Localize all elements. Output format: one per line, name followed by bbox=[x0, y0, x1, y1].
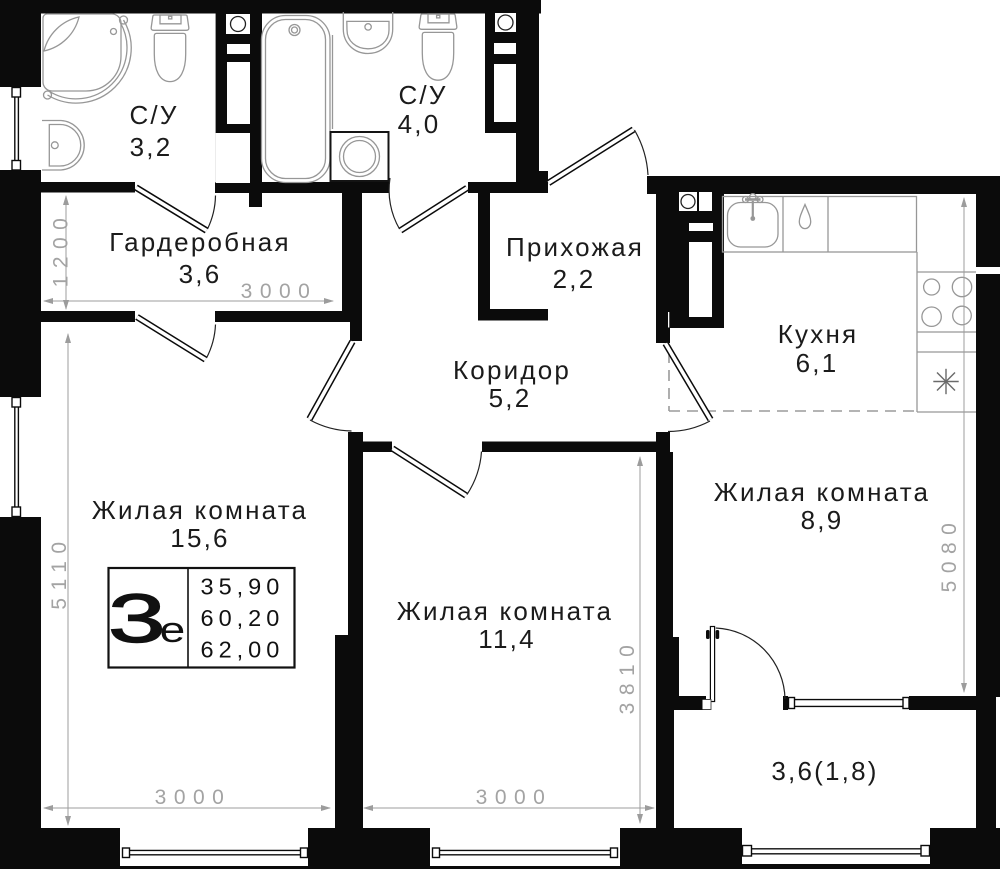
svg-text:Гардеробная: Гардеробная bbox=[109, 227, 290, 257]
svg-text:Жилая комната: Жилая комната bbox=[397, 596, 613, 626]
svg-text:3000: 3000 bbox=[476, 786, 553, 809]
svg-text:3810: 3810 bbox=[616, 638, 639, 715]
svg-text:3,6(1,8): 3,6(1,8) bbox=[771, 756, 878, 786]
svg-text:3,6: 3,6 bbox=[179, 259, 222, 289]
svg-text:62,00: 62,00 bbox=[201, 637, 285, 663]
svg-text:3000: 3000 bbox=[155, 786, 232, 809]
svg-text:Кухня: Кухня bbox=[778, 319, 859, 349]
svg-text:5,2: 5,2 bbox=[489, 383, 532, 413]
svg-text:60,20: 60,20 bbox=[201, 605, 285, 631]
svg-text:3,2: 3,2 bbox=[130, 132, 173, 162]
svg-text:3000: 3000 bbox=[241, 280, 318, 303]
svg-text:8,9: 8,9 bbox=[801, 505, 844, 535]
svg-text:5110: 5110 bbox=[48, 534, 71, 609]
svg-text:С/У: С/У bbox=[129, 100, 178, 130]
svg-text:Жилая комната: Жилая комната bbox=[714, 477, 930, 507]
svg-text:С/У: С/У bbox=[398, 80, 447, 110]
svg-text:4,0: 4,0 bbox=[398, 109, 441, 139]
svg-text:11,4: 11,4 bbox=[478, 624, 535, 654]
svg-text:15,6: 15,6 bbox=[170, 523, 229, 553]
svg-text:Прихожая: Прихожая bbox=[506, 232, 644, 262]
svg-text:1200: 1200 bbox=[50, 211, 73, 288]
svg-text:5080: 5080 bbox=[938, 516, 961, 593]
svg-text:2,2: 2,2 bbox=[553, 264, 596, 294]
svg-text:е: е bbox=[160, 610, 186, 650]
svg-text:6,1: 6,1 bbox=[796, 348, 839, 378]
svg-text:3: 3 bbox=[108, 579, 166, 657]
svg-text:35,90: 35,90 bbox=[201, 574, 285, 600]
svg-text:Коридор: Коридор bbox=[453, 355, 571, 385]
svg-text:Жилая комната: Жилая комната bbox=[92, 495, 308, 525]
